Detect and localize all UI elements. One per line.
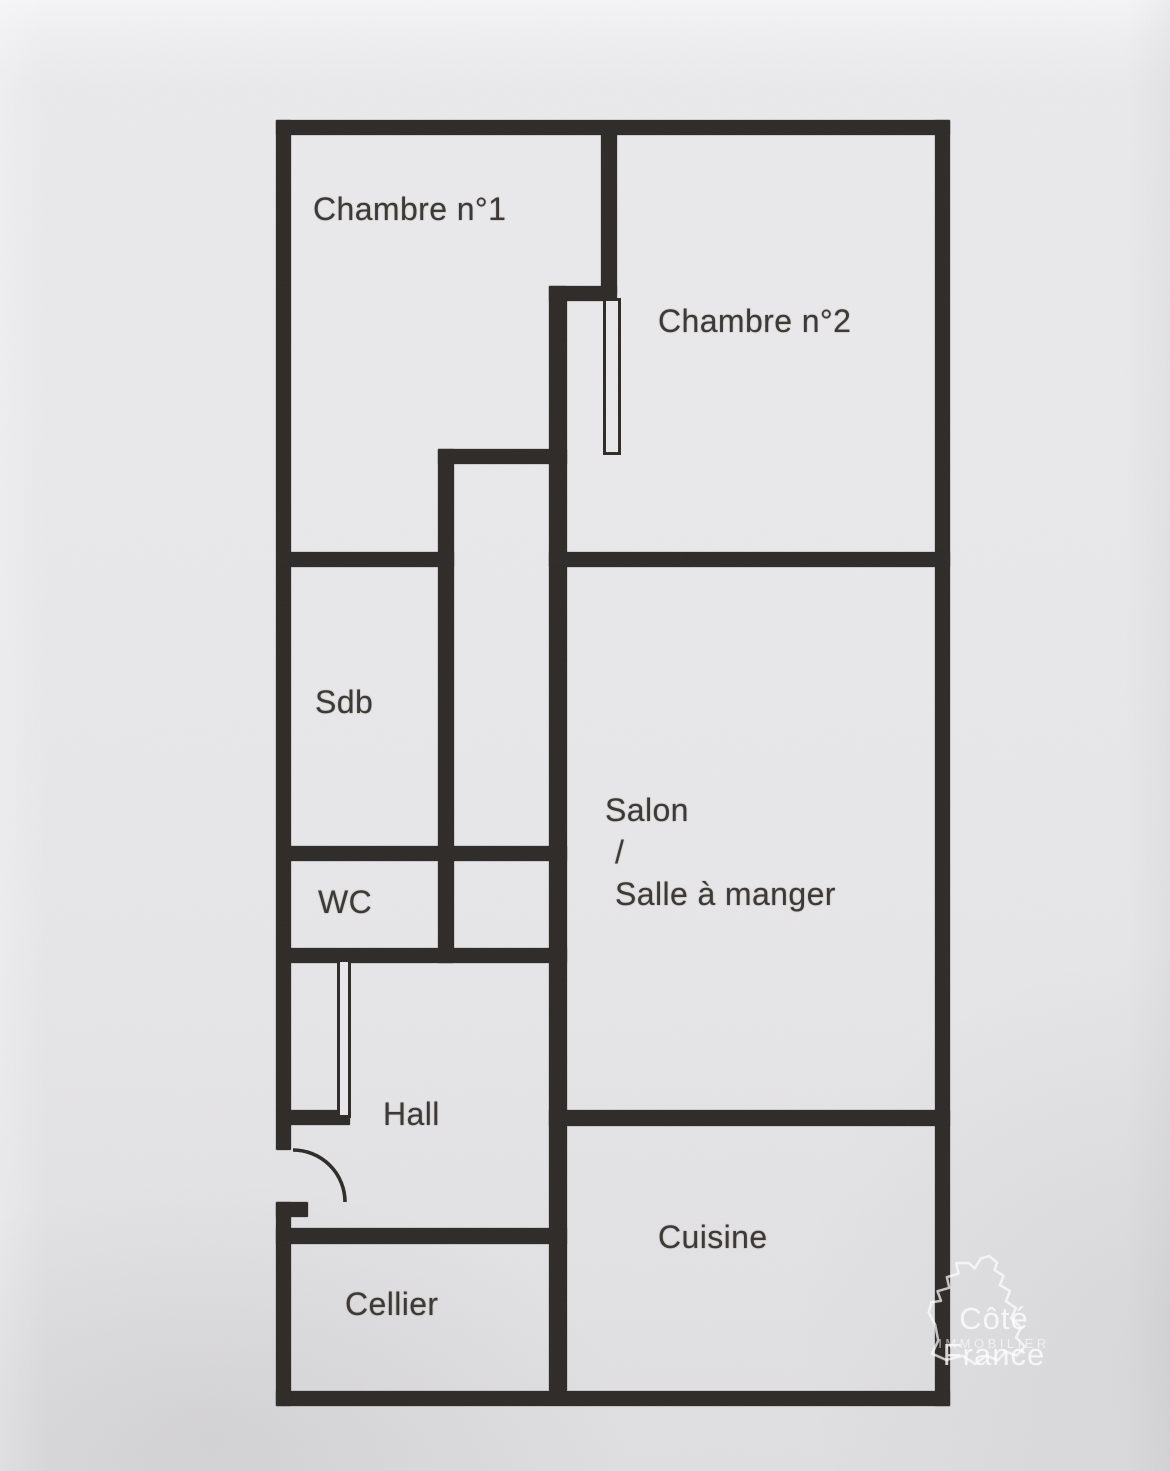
wall-chambre2-salon: [549, 552, 950, 567]
paper-grain-texture: [0, 0, 1170, 1471]
wall-sdb-wc: [280, 846, 567, 861]
door-leaf-hall: [337, 959, 351, 1118]
wall-entrance-hinge-stub: [276, 1202, 308, 1217]
wall-closet-left: [438, 449, 454, 963]
salon-label-line3: Salle à manger: [615, 873, 836, 915]
room-label-sdb: Sdb: [315, 684, 373, 721]
watermark-tagline: IMMOBILIER: [905, 1336, 1083, 1351]
room-label-wc: WC: [318, 884, 372, 921]
wall-wc-hall: [280, 948, 567, 963]
wall-exterior-right: [935, 120, 950, 1406]
wall-hall-cellier: [276, 1228, 567, 1244]
room-label-chambre2: Chambre n°2: [658, 303, 851, 340]
paper-lighting-shade: [0, 0, 1170, 1471]
room-label-salon: Salon / Salle à manger: [605, 789, 836, 915]
floorplan-photo: { "plan": { "rooms": { "chambre1": {"lab…: [0, 0, 1170, 1471]
wall-closet-top: [438, 449, 567, 464]
room-label-chambre1: Chambre n°1: [313, 191, 506, 228]
door-leaf-chambre2: [603, 298, 621, 455]
watermark-brand: Côté France: [905, 1301, 1083, 1373]
room-label-cuisine: Cuisine: [658, 1219, 768, 1256]
wall-chambre1-chambre2: [601, 125, 617, 294]
salon-label-line1: Salon: [605, 789, 836, 831]
salon-label-line2: /: [615, 831, 836, 873]
wall-salon-cuisine: [549, 1110, 950, 1126]
wall-chambre1-sdb: [280, 552, 454, 567]
room-label-hall: Hall: [383, 1096, 440, 1133]
room-label-cellier: Cellier: [345, 1286, 439, 1323]
wall-exterior-left-upper: [276, 120, 291, 1150]
wall-exterior-bottom: [276, 1391, 950, 1406]
